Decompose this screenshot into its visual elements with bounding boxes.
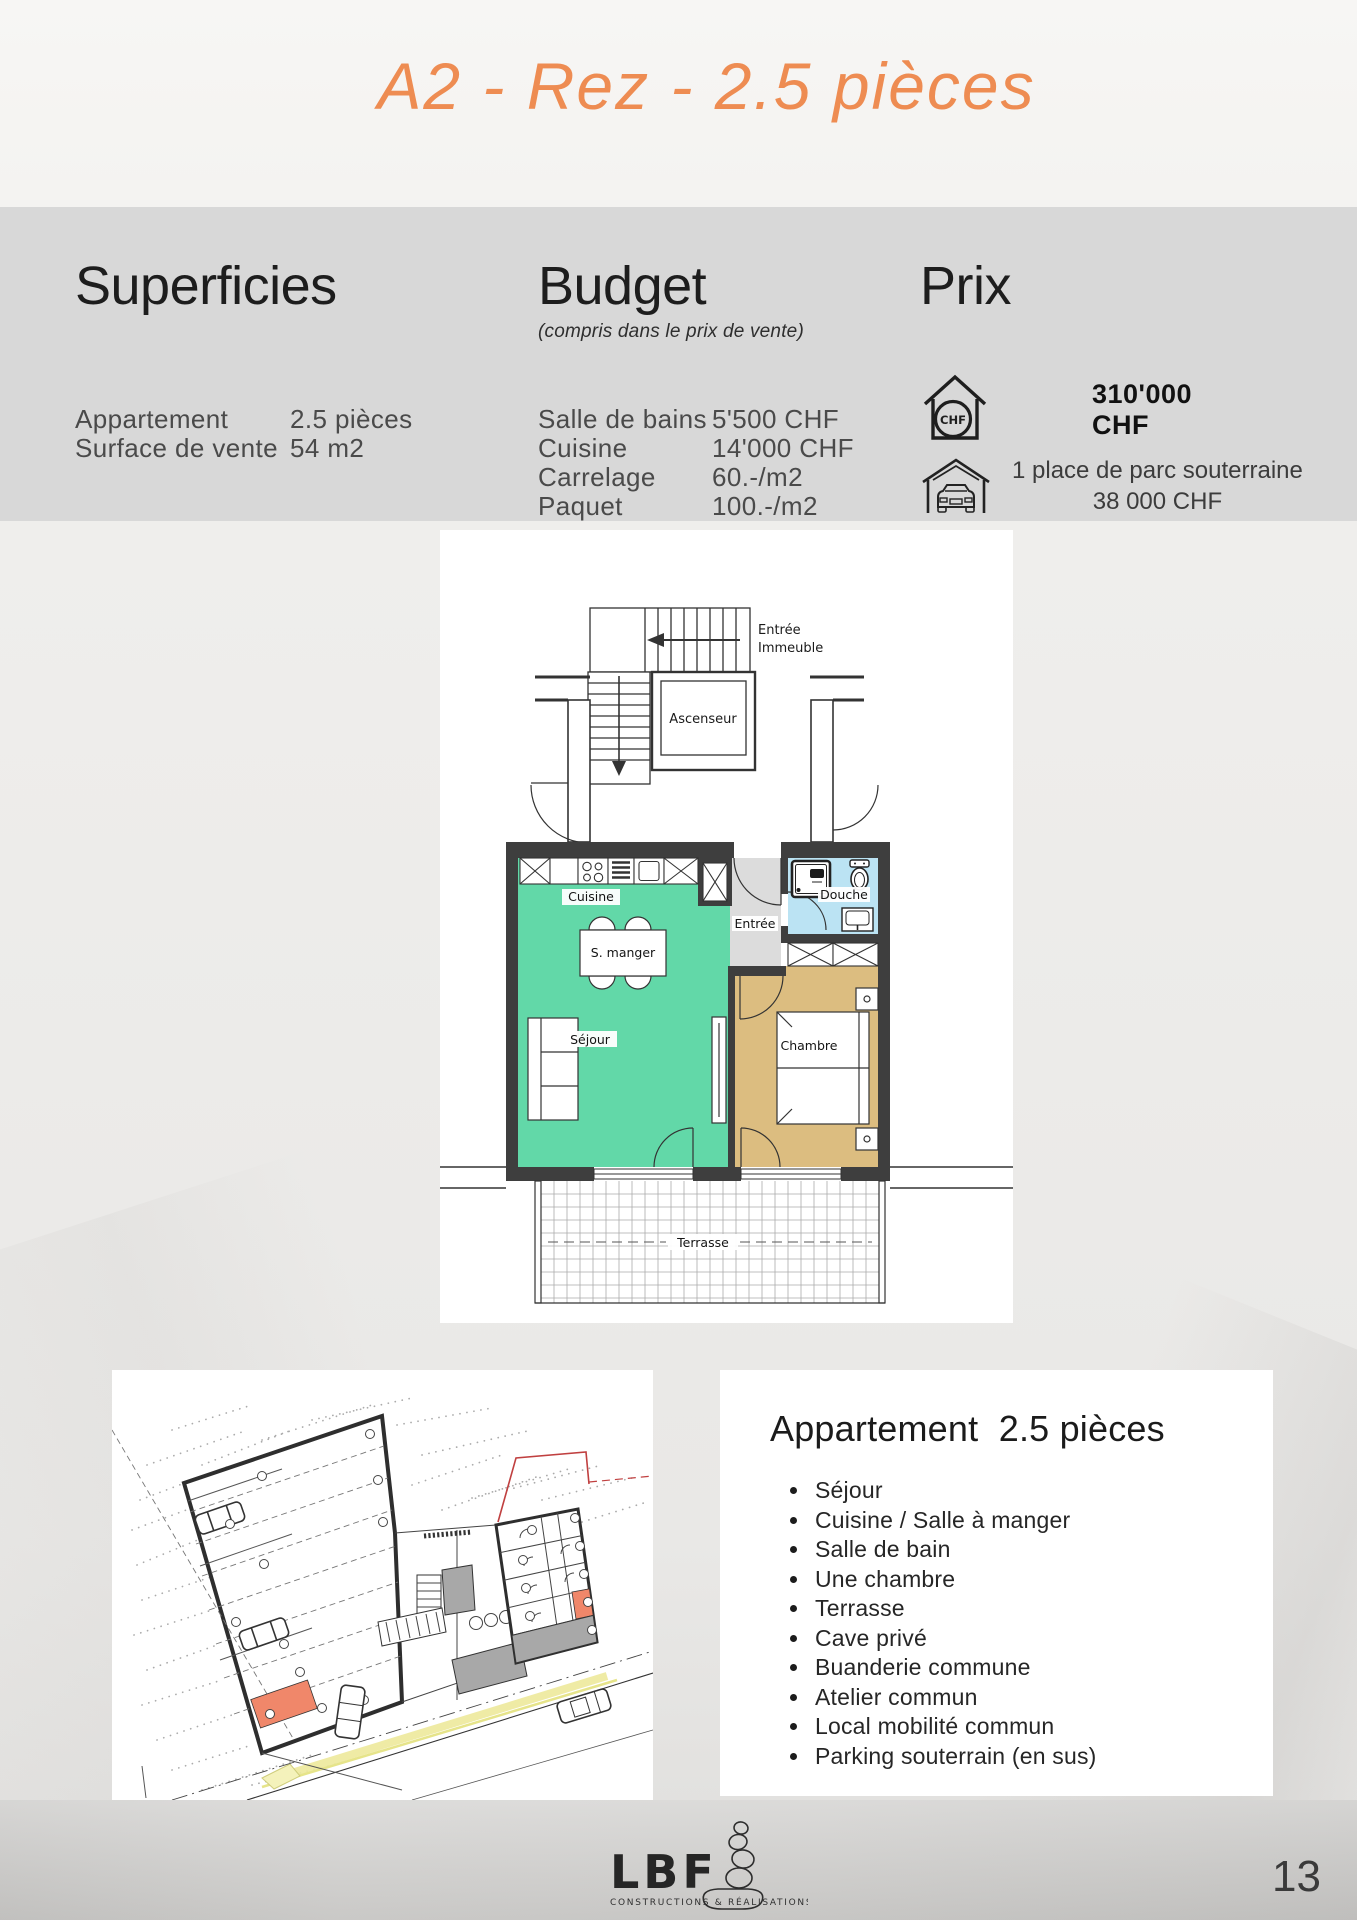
- row-label: Surface de vente: [75, 434, 290, 463]
- bullet-dot: [790, 1576, 797, 1583]
- features-card: Appartement 2.5 pièces Séjour Cuisine / …: [720, 1370, 1273, 1796]
- label-terrasse: Terrasse: [676, 1235, 729, 1250]
- section-prix: Prix CHF 310'000 CHF: [920, 255, 1011, 569]
- row-value: 14'000 CHF: [712, 434, 854, 463]
- list-item: Parking souterrain (en sus): [790, 1742, 1243, 1772]
- row-label: Appartement: [75, 405, 290, 434]
- list-item: Buanderie commune: [790, 1653, 1243, 1683]
- parking-label: 1 place de parc souterraine: [1012, 457, 1303, 484]
- page-number: 13: [1272, 1852, 1321, 1902]
- lbf-logo: LBF CONSTRUCTIONS & RÉALISATIONS: [608, 1812, 808, 1917]
- label-s-manger: S. manger: [591, 945, 656, 960]
- brochure-page: A2 - Rez - 2.5 pièces Superficies Appart…: [0, 0, 1357, 1920]
- list-item-label: Local mobilité commun: [815, 1713, 1054, 1740]
- bullet-dot: [790, 1635, 797, 1642]
- row-value: 60.-/m2: [712, 463, 803, 492]
- list-item: Cave privé: [790, 1624, 1243, 1654]
- house-chf-icon: CHF: [920, 369, 990, 450]
- label-entree-immeuble: Entrée: [758, 623, 801, 638]
- row-label: Cuisine: [538, 434, 712, 463]
- row-label: Carrelage: [538, 463, 712, 492]
- list-item-label: Séjour: [815, 1477, 883, 1504]
- prix-title: Prix: [920, 255, 1011, 317]
- row-label: Paquet: [538, 492, 712, 521]
- apartment-price: 310'000 CHF: [1092, 379, 1192, 441]
- label-entree-immeuble-2: Immeuble: [758, 641, 823, 656]
- row-value: 54 m2: [290, 434, 364, 463]
- budget-subtitle: (compris dans le prix de vente): [538, 321, 804, 343]
- label-entree: Entrée: [735, 916, 776, 931]
- room-entree: [730, 858, 781, 966]
- bullet-dot: [790, 1694, 797, 1701]
- list-item: Salle de bain: [790, 1535, 1243, 1565]
- row-value: 5'500 CHF: [712, 405, 839, 434]
- budget-row: Paquet 100.-/m2: [538, 492, 854, 521]
- list-item: Une chambre: [790, 1565, 1243, 1595]
- chf-coin-label: CHF: [940, 413, 966, 427]
- list-item-label: Terrasse: [815, 1595, 905, 1622]
- row-label: Salle de bains: [538, 405, 712, 434]
- info-band: Superficies Appartement 2.5 pièces Surfa…: [0, 207, 1357, 521]
- car-on-road: [556, 1688, 612, 1724]
- superficies-row: Appartement 2.5 pièces: [75, 405, 413, 434]
- logo-caption: CONSTRUCTIONS & RÉALISATIONS: [610, 1896, 808, 1908]
- budget-row: Salle de bains 5'500 CHF: [538, 405, 854, 434]
- list-item: Local mobilité commun: [790, 1712, 1243, 1742]
- features-title: Appartement 2.5 pièces: [770, 1408, 1243, 1450]
- budget-row: Cuisine 14'000 CHF: [538, 434, 854, 463]
- bullet-dot: [790, 1517, 797, 1524]
- label-chambre: Chambre: [781, 1038, 838, 1053]
- row-value: 2.5 pièces: [290, 405, 413, 434]
- page-title: A2 - Rez - 2.5 pièces: [28, 48, 1357, 124]
- garage-car-icon: [920, 455, 992, 520]
- bullet-dot: [790, 1487, 797, 1494]
- list-item-label: Buanderie commune: [815, 1654, 1031, 1681]
- list-item: Cuisine / Salle à manger: [790, 1506, 1243, 1536]
- bullet-dot: [790, 1723, 797, 1730]
- label-douche: Douche: [820, 887, 868, 902]
- bullet-dot: [790, 1605, 797, 1612]
- price-row-parking: 1 place de parc souterraine 38 000 CHF: [920, 455, 1303, 520]
- list-item-label: Cuisine / Salle à manger: [815, 1507, 1070, 1534]
- list-item: Atelier commun: [790, 1683, 1243, 1713]
- list-item-label: Salle de bain: [815, 1536, 951, 1563]
- list-item: Séjour: [790, 1476, 1243, 1506]
- floorplan-image: Ascenseur Entrée Immeuble: [440, 530, 1013, 1323]
- bullet-dot: [790, 1664, 797, 1671]
- list-item-label: Atelier commun: [815, 1684, 978, 1711]
- section-budget: Budget (compris dans le prix de vente) S…: [538, 255, 804, 569]
- list-item: Terrasse: [790, 1594, 1243, 1624]
- price-row-apartment: CHF 310'000 CHF: [920, 369, 1192, 450]
- list-item-label: Cave privé: [815, 1625, 927, 1652]
- list-item-label: Une chambre: [815, 1566, 955, 1593]
- bullet-dot: [790, 1546, 797, 1553]
- budget-row: Carrelage 60.-/m2: [538, 463, 854, 492]
- bullet-dot: [790, 1753, 797, 1760]
- label-sejour: Séjour: [570, 1032, 611, 1047]
- superficies-title: Superficies: [75, 255, 337, 317]
- features-list: Séjour Cuisine / Salle à manger Salle de…: [790, 1476, 1243, 1771]
- list-item-label: Parking souterrain (en sus): [815, 1743, 1097, 1770]
- row-value: 100.-/m2: [712, 492, 818, 521]
- apartment-block: [496, 1509, 597, 1663]
- superficies-row: Surface de vente 54 m2: [75, 434, 413, 463]
- siteplan-image: [112, 1370, 653, 1800]
- section-superficies: Superficies Appartement 2.5 pièces Surfa…: [75, 255, 337, 569]
- closets: [788, 943, 878, 966]
- label-cuisine: Cuisine: [568, 889, 614, 904]
- budget-title: Budget: [538, 255, 804, 317]
- label-ascenseur: Ascenseur: [669, 712, 737, 727]
- tv-cabinet: [712, 1017, 726, 1123]
- logo-text: LBF: [610, 1845, 718, 1899]
- parking-price: 38 000 CHF: [1093, 488, 1222, 515]
